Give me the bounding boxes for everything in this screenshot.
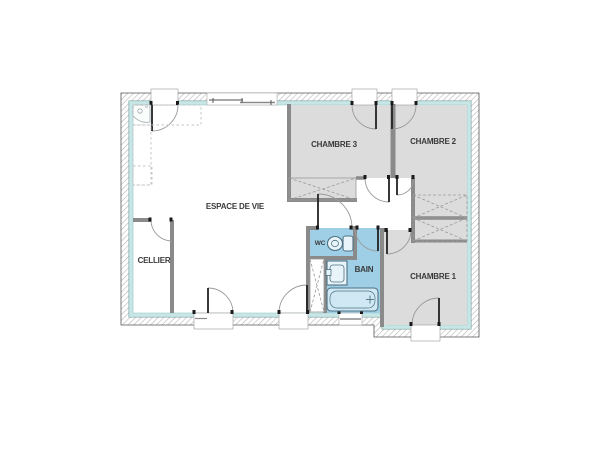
toilet-icon <box>328 236 354 251</box>
bathtub-icon <box>327 288 378 311</box>
bathroom-sink-icon <box>326 261 347 285</box>
chambre3-window-opening <box>352 89 377 105</box>
entrance-door-arc <box>152 105 178 131</box>
floor-plan-page: ESPACE DE VIE CELLIER CHAMBRE 3 CHAMBRE … <box>0 0 600 450</box>
room-chambre-2-fill2 <box>413 178 467 195</box>
bain-window <box>339 313 362 325</box>
entrance-opening <box>151 89 178 105</box>
living-room-window <box>207 93 277 105</box>
label-espace-de-vie: ESPACE DE VIE <box>206 202 265 211</box>
cellier-door-arc <box>151 220 172 241</box>
terrace-door-b-opening <box>279 313 308 329</box>
washbasin-icon <box>133 105 150 122</box>
chambre3-door-arc <box>365 178 389 202</box>
label-chambre-2: CHAMBRE 2 <box>410 137 457 146</box>
terrace-door-a-arc <box>208 288 233 313</box>
label-wc: WC <box>315 240 326 247</box>
floor-plan: ESPACE DE VIE CELLIER CHAMBRE 3 CHAMBRE … <box>0 0 600 450</box>
closet-hall <box>310 259 324 312</box>
terrace-door-a-opening <box>194 313 233 329</box>
label-bain: BAIN <box>355 265 374 274</box>
label-cellier: CELLIER <box>138 256 171 265</box>
chambre2-window-opening <box>392 89 417 105</box>
chambre1-door-opening <box>411 325 440 341</box>
label-chambre-3: CHAMBRE 3 <box>311 140 358 149</box>
label-chambre-1: CHAMBRE 1 <box>410 272 457 281</box>
terrace-door-b-arc <box>279 285 307 313</box>
